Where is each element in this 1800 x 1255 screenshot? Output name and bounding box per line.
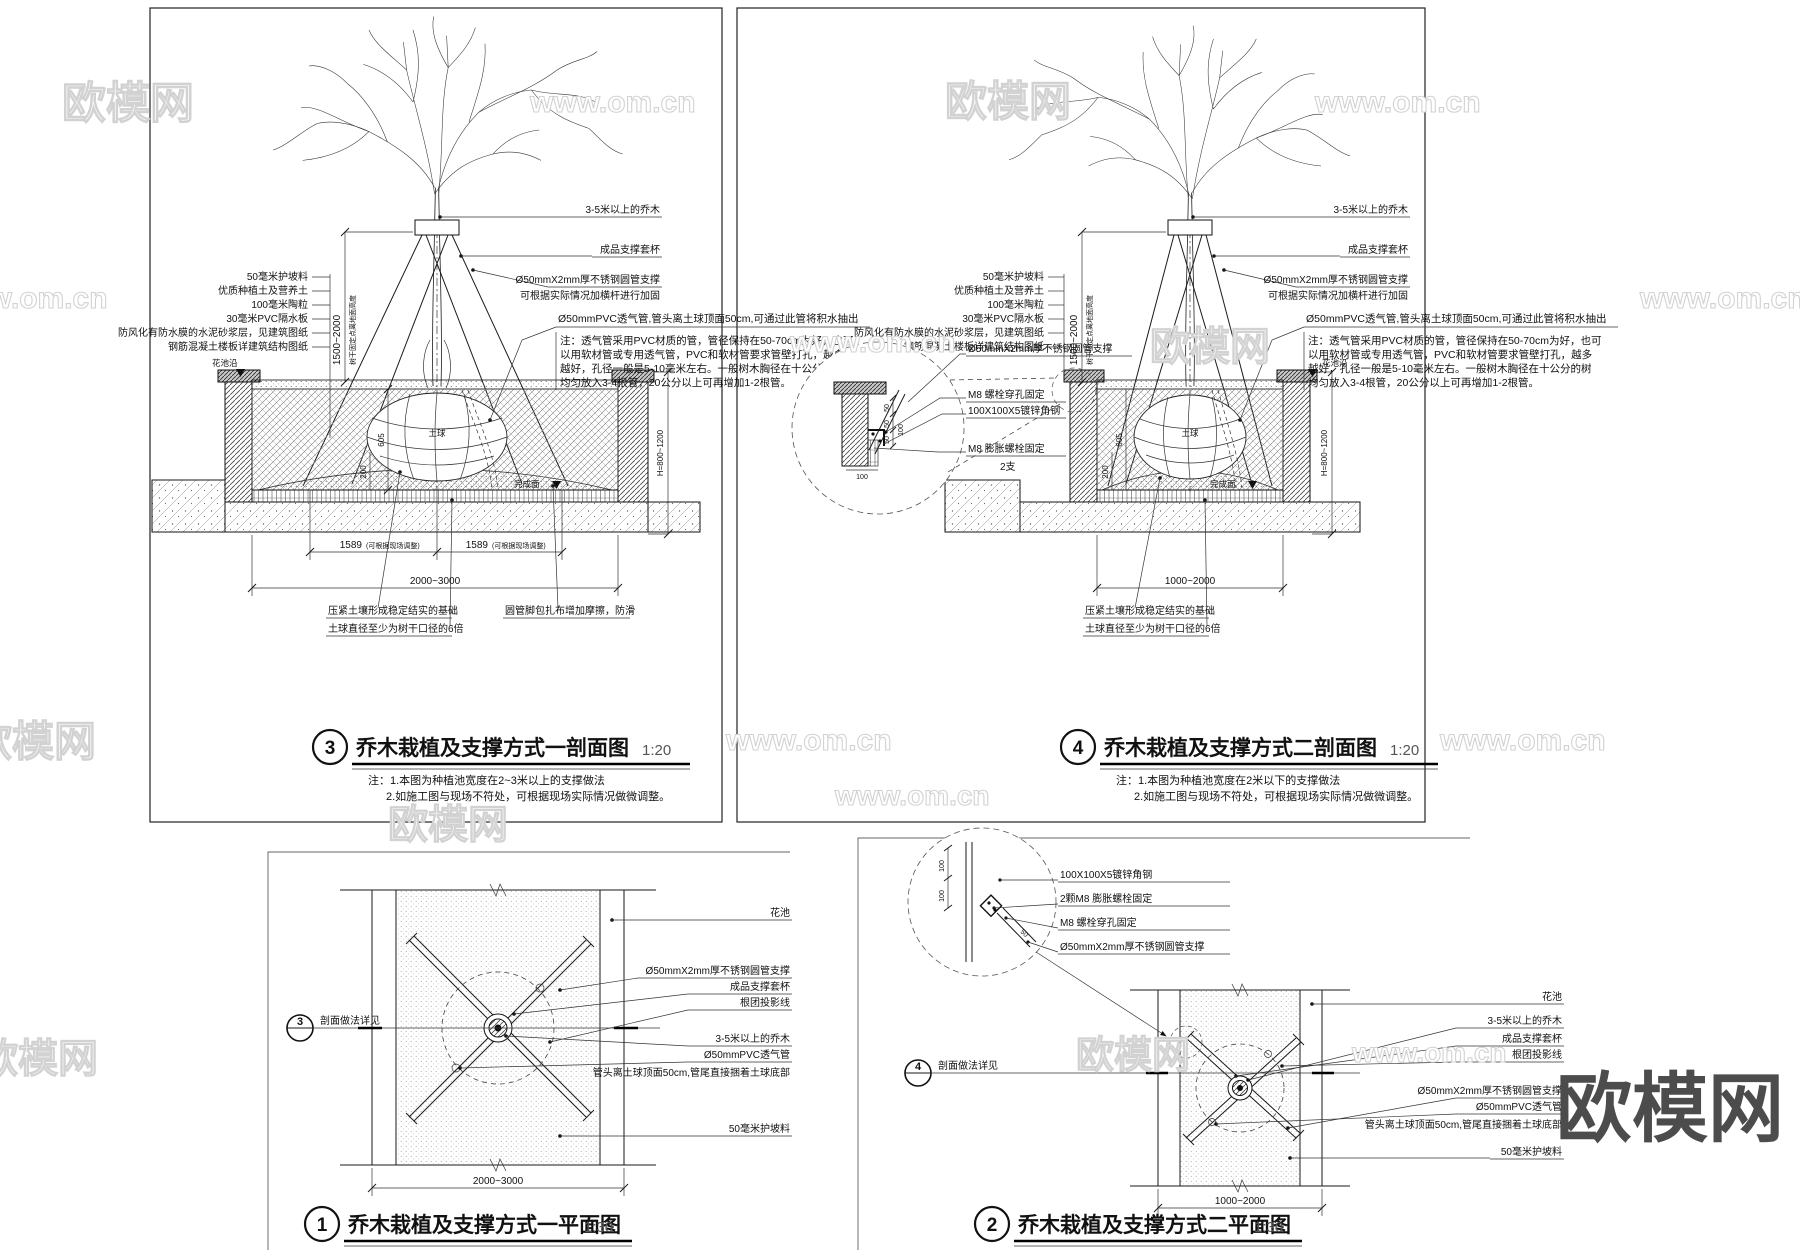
label-ceramsite-2: 100毫米陶粒 (987, 298, 1044, 311)
plan2-detail-dim100b: 100 (939, 890, 946, 902)
label-planter-edge-2: 花池沿 (1322, 358, 1348, 368)
section-view-2: 土球 50毫米护坡料 优质种植土及营养土 100毫米陶粒 30毫米PVC隔水板 … (792, 26, 1618, 803)
dim-depth-text: H=800~1200 (656, 429, 665, 476)
dim-ball-text-2: 605 (1115, 433, 1124, 447)
dim-height: 1500~2000 树干固定点离地面高度 (332, 228, 413, 386)
dim-1589-right: 1589 (466, 540, 489, 551)
plan1-dim: 2000~3000 (368, 1168, 628, 1196)
vent-note-line4: 均匀放入3-4根管，20公分以上可再增加1-2根管。 (560, 376, 791, 389)
watermark-logo-2: 欧模网 (945, 78, 1071, 125)
support-collar (415, 220, 459, 235)
support-collar-2 (1168, 220, 1212, 235)
title-section-2: 4 乔木栽植及支撑方式二剖面图 1:20 注：1.本图为种植池宽度在2米以下的支… (1061, 730, 1438, 803)
detail-label-anchor: M8 膨胀螺栓固定 (968, 442, 1045, 455)
watermark-logo-4: 欧模网 (0, 718, 96, 765)
watermark-url-5: www.om.cn (1639, 282, 1800, 315)
plan1-number: 1 (317, 1215, 328, 1236)
section-ref-label-2: 剖面做法详见 (938, 1059, 998, 1072)
dim-width-text: 2000~3000 (410, 576, 461, 587)
plan2-label-proj: 根团投影线 (1512, 1048, 1562, 1061)
plan2-label-support2: Ø50mmX2mm厚不锈钢圆管支撑 (1418, 1084, 1562, 1097)
label-finish-face: 完成面 (514, 479, 540, 489)
view-number-2: 4 (1073, 738, 1084, 759)
dim-1589-left-note: (可根据现场调整) (366, 541, 420, 550)
section-view-1: 土球 50毫米护坡料 优质种植土及营养土 100毫米陶粒 30毫米PVC隔水板 … (118, 16, 870, 803)
watermark-logo-3: 欧模网 (1150, 325, 1270, 369)
view2-note-1: 注：1.本图为种植池宽度在2米以下的支撑做法 (1116, 773, 1340, 787)
vent2-note-line4: 均匀放入3-4根管，20公分以上可再增加1-2根管。 (1308, 376, 1539, 389)
label-tree: 3-5米以上的乔木 (586, 203, 660, 216)
label-foundation-2: 压紧土壤形成稳定结实的基础 (1085, 604, 1215, 617)
detail-label-anchor-qty: 2支 (1000, 461, 1016, 473)
watermark-url-6: www.om.cn (725, 724, 892, 757)
title-plan-2: 2 乔木栽植及支撑方式二平面图 1:30 (975, 1207, 1302, 1246)
label-ceramsite: 100毫米陶粒 (251, 298, 308, 311)
dim-height-text: 1500~2000 (332, 314, 343, 365)
plan2-label-angle: 100X100X5镀锌角钢 (1060, 868, 1152, 881)
watermark-logo-7: 欧模网 (1076, 1035, 1190, 1077)
dim-mound-text-2: 200 (1101, 465, 1110, 479)
plan-view-1: 3 剖面做法详见 花池 Ø50mmX2mm厚不锈钢圆管支撑 成品支撑套杯 根团投… (287, 884, 792, 1246)
label-soil-2: 优质种植土及营养土 (954, 284, 1044, 297)
detail-dim-50b: 50 (884, 420, 891, 428)
label-support-2: Ø50mmX2mm厚不锈钢圆管支撑 (1264, 273, 1408, 286)
label-foundation: 压紧土壤形成稳定结实的基础 (328, 604, 458, 617)
vent2-note-line1: 注：透气管采用PVC材质的管，管径保持在50-70cm为好，也可 (1308, 334, 1601, 347)
detail-label-support: Ø50mmX2mm厚不锈钢圆管支撑 (968, 342, 1112, 355)
label-ball-dia: 土球直径至少为树干口径的6倍 (328, 622, 464, 635)
dim-height-text-2: 1500~2000 (1069, 314, 1080, 365)
label-collar: 成品支撑套杯 (600, 243, 660, 256)
label-slope-2: 50毫米护坡料 (983, 270, 1044, 283)
plan1-label-collar: 成品支撑套杯 (730, 980, 790, 993)
label-collar-2: 成品支撑套杯 (1348, 243, 1408, 256)
watermark-logo: 欧模网 (62, 79, 194, 128)
plan1-label-proj: 根团投影线 (740, 996, 790, 1009)
watermark-url-9: www.om.cn (1351, 1037, 1507, 1068)
plan2-label-support: Ø50mmX2mm厚不锈钢圆管支撑 (1060, 940, 1204, 953)
plan1-title: 乔木栽植及支撑方式一平面图 (347, 1213, 621, 1237)
plan2-label-collar: 成品支撑套杯 (1502, 1032, 1562, 1045)
section-ref-label: 剖面做法详见 (320, 1014, 380, 1027)
plan1-label-slope: 50毫米护坡料 (729, 1122, 790, 1135)
plan2-dim: 1000~2000 (1154, 1189, 1326, 1216)
view-scale: 1:20 (642, 742, 671, 759)
watermark-logo-5: 欧模网 (388, 803, 508, 847)
view-title-2: 乔木栽植及支撑方式二剖面图 (1103, 736, 1377, 760)
watermark-logo-6: 欧模网 (0, 1037, 98, 1081)
plan2-detail-dim100a: 100 (939, 860, 946, 872)
plan1-label-vent-sub: 管头离土球顶面50cm,管尾直接捆着土球底部 (593, 1066, 790, 1079)
dim-height-note: 树干固定点离地面高度 (348, 295, 357, 365)
label-pvc-board: 30毫米PVC隔水板 (226, 312, 308, 325)
structure-slab (225, 502, 648, 532)
plan2-scale: 1:30 (1254, 1219, 1283, 1236)
plan1-label-tree: 3-5米以上的乔木 (716, 1032, 790, 1045)
title-section-1: 3 乔木栽植及支撑方式一剖面图 1:20 注：1.本图为种植池宽度在2~3米以上… (313, 730, 690, 803)
label-mortar: 防风化有防水膜的水泥砂浆层，见建筑图纸 (118, 326, 308, 339)
dim-depth-text-2: H=800~1200 (1320, 429, 1329, 476)
label-vent-2: Ø50mmPVC透气管,管头离土球顶面50cm,可通过此管将积水抽出 (1306, 312, 1606, 325)
dim-1589-right-note: (可根据现场调整) (492, 541, 546, 550)
title-plan-1: 1 乔木栽植及支撑方式一平面图 1:30 (305, 1207, 632, 1246)
root-ball-2: 土球 (1134, 395, 1246, 479)
vent-note-line3: 越好，孔径一般是5-10毫米左右。一般树木胸径在十公分的树 (560, 362, 844, 375)
view-number: 3 (325, 738, 336, 759)
detail-dim-100b: 100 (856, 474, 868, 481)
label-ball-dia-2: 土球直径至少为树干口径的6倍 (1085, 622, 1221, 635)
watermark-url-8: www.om.cn (834, 780, 990, 811)
detail-dim-100a: 100 (898, 424, 905, 436)
dim-mound-text: 200 (359, 465, 368, 479)
section-marker-number: 3 (297, 1016, 303, 1028)
label-tree-2: 3-5米以上的乔木 (1334, 203, 1408, 216)
cad-sheet: 土球 50毫米护坡料 优质种植土及营养土 100毫米陶粒 30毫米PVC隔水板 … (0, 0, 1800, 1255)
watermark-url-2: www.om.cn (1314, 86, 1481, 119)
root-ball-label: 土球 (428, 428, 446, 438)
vent2-note-line2: 以用软材管或专用透气管，PVC和软材管要求管壁打孔，越多 (1308, 348, 1592, 361)
label-planter-edge: 花池沿 (212, 358, 238, 368)
watermark-logo-big: 欧模网 (1556, 1067, 1784, 1152)
plan2-dim-text: 1000~2000 (1215, 1196, 1266, 1207)
dim-1589-left: 1589 (340, 540, 363, 551)
view-scale-2: 1:20 (1390, 742, 1419, 759)
label-rc-slab: 钢筋混凝土楼板详建筑结构图纸 (168, 340, 308, 353)
label-pvc-board-2: 30毫米PVC隔水板 (962, 312, 1044, 325)
plan1-scale: 1:30 (584, 1219, 613, 1236)
plan2-label-planter: 花池 (1542, 990, 1562, 1003)
plan2-number: 2 (987, 1215, 998, 1236)
plan1-label-planter: 花池 (770, 906, 790, 919)
label-support-note: 可根据实际情况加横杆进行加固 (520, 289, 660, 302)
watermark-url-3: www.om.cn (0, 282, 108, 315)
vent2-note-line3: 越好，孔径一般是5-10毫米左右。一般树木胸径在十公分的树 (1308, 362, 1592, 375)
detail-label-bolt: M8 螺栓穿孔固定 (968, 388, 1045, 401)
label-slope: 50毫米护坡料 (247, 270, 308, 283)
detail-dim-50a: 50 (884, 404, 891, 412)
section-marker-number-2: 4 (915, 1061, 922, 1073)
plan1-label-vent: Ø50mmPVC透气管 (704, 1048, 790, 1061)
root-ball-label-2: 土球 (1181, 428, 1199, 438)
plan1-dim-text: 2000~3000 (473, 1176, 524, 1187)
detail-label-angle: 100X100X5镀锌角钢 (968, 404, 1060, 417)
label-vent: Ø50mmPVC透气管,管头离土球顶面50cm,可通过此管将积水抽出 (558, 312, 858, 325)
dim-width-text-2: 1000~2000 (1165, 576, 1216, 587)
watermark-url-4: www.om.cn (789, 326, 956, 359)
detail-dim-50c: 50 (884, 436, 891, 444)
view-note-2: 2.如施工图与现场不符处，可根据现场实际情况做微调整。 (386, 789, 670, 803)
plan2-label-anchor: 2颗M8 膨胀螺栓固定 (1060, 892, 1152, 905)
label-finish-face-2: 完成面 (1210, 479, 1236, 489)
dims-bottom-2: 1000~2000 (1093, 535, 1287, 596)
plan2-title: 乔木栽植及支撑方式二平面图 (1017, 1213, 1291, 1237)
label-pipe-foot: 圆管脚包扎布增加摩擦，防滑 (505, 604, 635, 617)
label-support-note-2: 可根据实际情况加横杆进行加固 (1268, 289, 1408, 302)
plan1-label-support: Ø50mmX2mm厚不锈钢圆管支撑 (646, 964, 790, 977)
dim-ball-text: 605 (377, 433, 386, 447)
plan2-label-slope: 50毫米护坡料 (1501, 1145, 1562, 1158)
plan2-label-vent: Ø50mmPVC透气管 (1476, 1100, 1562, 1113)
cad-drawing-page: 土球 50毫米护坡料 优质种植土及营养土 100毫米陶粒 30毫米PVC隔水板 … (0, 0, 1800, 1255)
watermark-url: www.om.cn (529, 86, 696, 119)
drain-board (252, 490, 618, 502)
plan2-label-tree: 3-5米以上的乔木 (1488, 1014, 1562, 1027)
label-soil: 优质种植土及营养土 (218, 284, 308, 297)
watermark-url-7: www.om.cn (1439, 724, 1606, 757)
plan2-label-bolt: M8 螺栓穿孔固定 (1060, 916, 1137, 929)
view-title: 乔木栽植及支撑方式一剖面图 (355, 736, 629, 760)
view2-note-2: 2.如施工图与现场不符处，可根据现场实际情况做微调整。 (1134, 789, 1418, 803)
label-support: Ø50mmX2mm厚不锈钢圆管支撑 (516, 273, 660, 286)
plan2-label-vent-sub: 管头离土球顶面50cm,管尾直接捆着土球底部 (1365, 1118, 1562, 1131)
view-note-1: 注：1.本图为种植池宽度在2~3米以上的支撑做法 (368, 773, 605, 787)
watermarks: 欧模网 www.om.cn 欧模网 www.om.cn www.om.cn ww… (0, 78, 1800, 1152)
